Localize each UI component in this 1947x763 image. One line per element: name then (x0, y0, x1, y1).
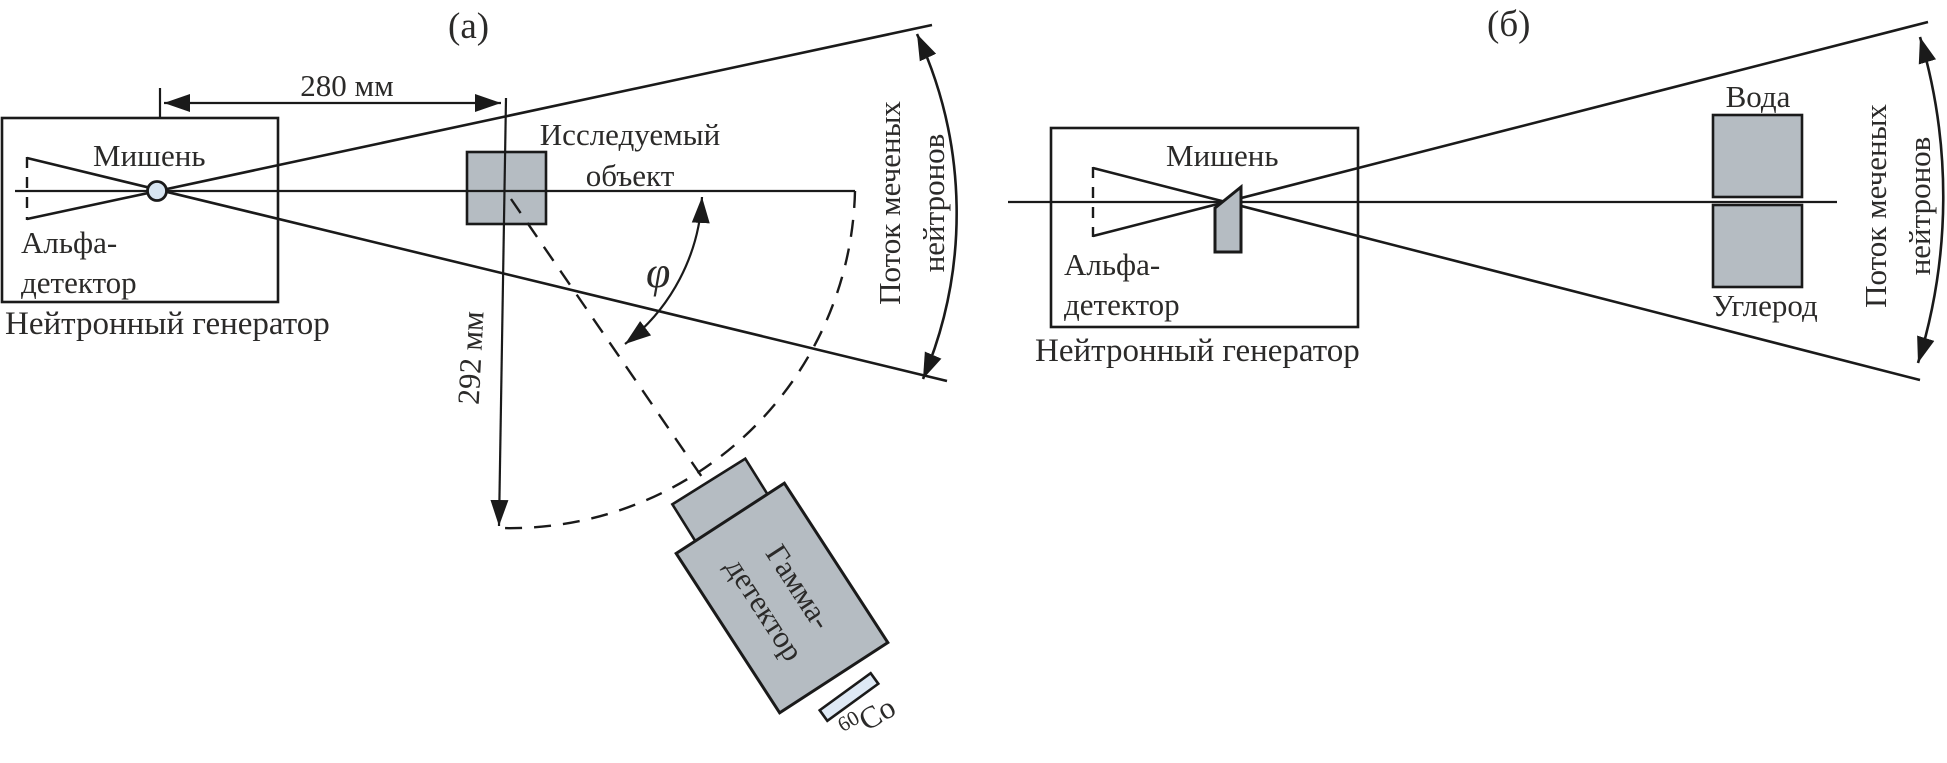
flux-label-a-line1: Поток меченых (868, 73, 912, 333)
carbon-label: Углерод (1704, 287, 1826, 325)
panel-b-geometry (1008, 22, 1943, 380)
alpha-detector-label-b: Альфа- детектор (1064, 245, 1180, 324)
flux-label-b: Поток меченых нейтронов (1854, 76, 1942, 336)
diagram-geometry (0, 0, 1947, 763)
alpha-detector-label-b-line1: Альфа- (1064, 245, 1180, 285)
flux-label-b-line1: Поток меченых (1854, 76, 1898, 336)
neutron-generator-label-b: Нейтронный генератор (1035, 331, 1360, 371)
target-label-b: Мишень (1166, 137, 1279, 175)
target-label-a: Мишень (93, 137, 206, 175)
flux-label-b-line2: нейтронов (1898, 76, 1942, 336)
scan-arc-dashed (500, 191, 855, 528)
water-label: Вода (1697, 78, 1819, 116)
flux-label-a: Поток меченых нейтронов (868, 73, 956, 333)
gamma-axis-dashed (511, 199, 704, 480)
dim-292-label: 292 мм (449, 295, 493, 421)
alpha-detector-label-a: Альфа- детектор (21, 223, 137, 302)
figure: (а) 280 мм Мишень Альфа- детектор Нейтро… (0, 0, 1947, 763)
panel-b-label: (б) (1487, 2, 1530, 47)
flux-label-a-line2: нейтронов (912, 73, 956, 333)
alpha-detector-label-a-line1: Альфа- (21, 223, 137, 263)
tritium-target-a (148, 182, 167, 201)
inspected-object-label-line2: объект (520, 155, 740, 196)
alpha-detector-label-b-line2: детектор (1064, 285, 1180, 325)
carbon-sample-box (1713, 205, 1802, 287)
inspected-object-label-line1: Исследуемый (520, 114, 740, 155)
inspected-object-label: Исследуемый объект (520, 114, 740, 196)
panel-a-label: (а) (448, 4, 489, 49)
water-sample-box (1713, 115, 1802, 197)
dim-280-label: 280 мм (247, 67, 447, 105)
dim-280-text: 280 мм (247, 67, 447, 105)
alpha-detector-label-a-line2: детектор (21, 263, 137, 303)
phi-angle-label: φ (646, 246, 670, 300)
neutron-generator-label-a: Нейтронный генератор (5, 304, 330, 344)
